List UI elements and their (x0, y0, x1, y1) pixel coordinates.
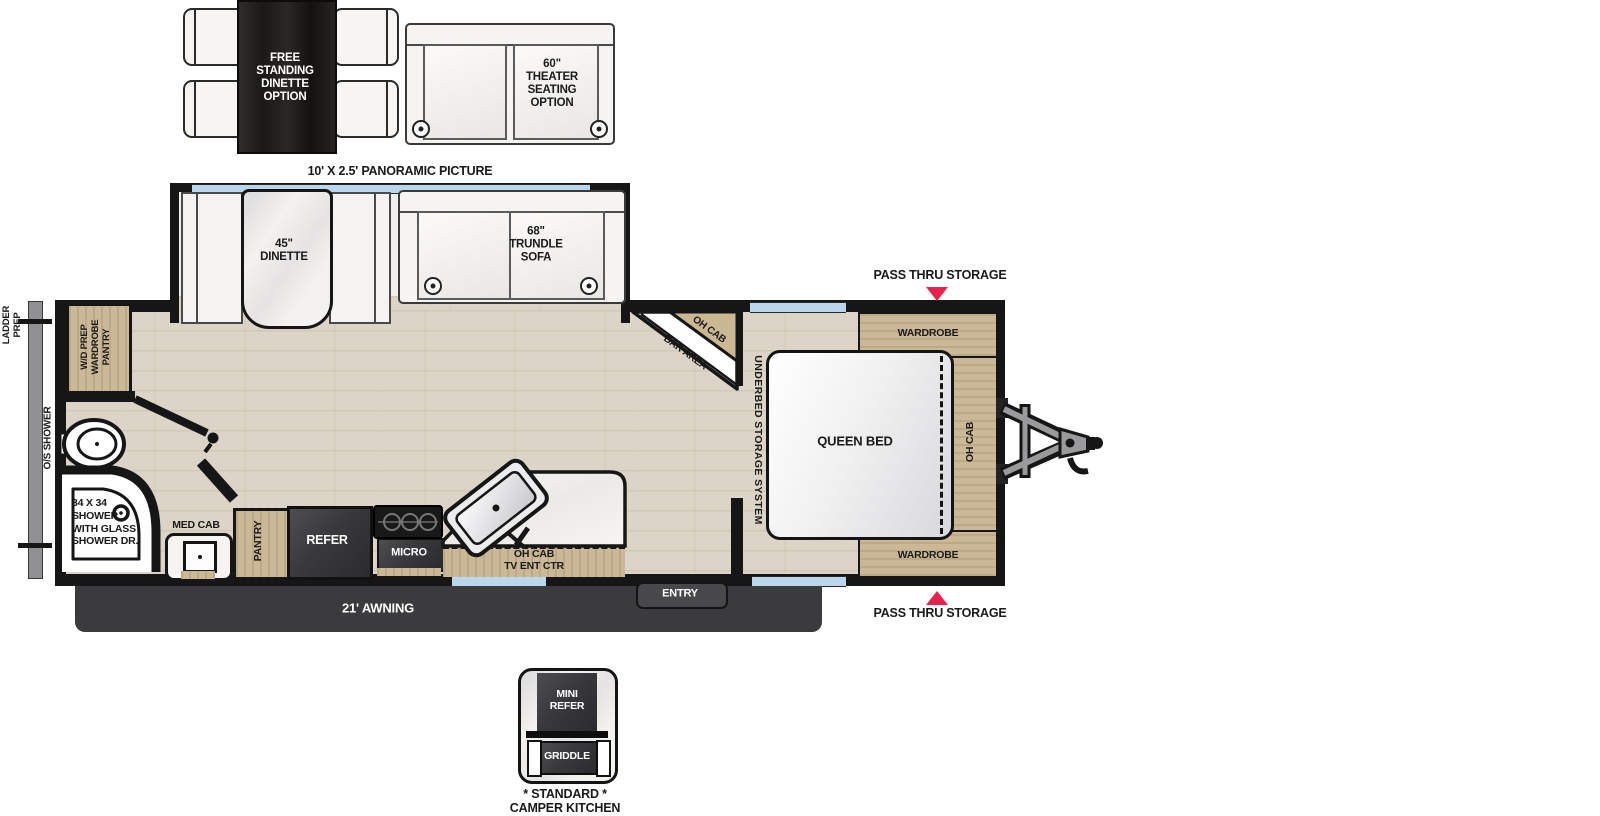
hitch (996, 398, 1103, 484)
dinette-seatback (374, 192, 391, 324)
sofa-back (400, 192, 624, 213)
underbed-storage-label: UNDERBED STORAGE SYSTEM (751, 355, 763, 524)
free-standing-dinette-label: FREE STANDING DINETTE OPTION (256, 52, 314, 104)
dinette-bench (196, 192, 243, 324)
pantry-label: PANTRY (253, 521, 265, 562)
chair-back (386, 82, 397, 136)
bed-fold-line (940, 356, 943, 534)
queen-bed-label: QUEEN BED (817, 435, 893, 450)
bedroom-wall-upper (731, 312, 743, 386)
shower-label: 34 X 34 SHOWER WITH GLASS SHOWER DR. (72, 497, 148, 548)
dinette-label: 45" DINETTE (260, 238, 308, 264)
sofa-back (407, 25, 613, 46)
wall-left (55, 300, 66, 586)
arrow-down-icon (926, 287, 948, 301)
awning-label: 21' AWNING (342, 602, 414, 617)
bath-vanity (165, 533, 233, 581)
bedroom-wall-lower (731, 498, 743, 576)
micro-base (377, 568, 441, 576)
os-shower-label: O/S SHOWER (42, 406, 53, 469)
bathroom-wall (55, 391, 135, 402)
griddle-label: GRIDDLE (544, 751, 590, 763)
cupholder-icon (590, 120, 608, 138)
trundle-sofa-label: 68" TRUNDLE SOFA (509, 225, 563, 264)
cupholder-icon (412, 120, 430, 138)
med-cab-label: MED CAB (172, 520, 220, 532)
cupholder-icon (424, 277, 442, 295)
camper-kitchen-rail (526, 731, 608, 738)
panoramic-picture-label: 10' X 2.5' PANORAMIC PICTURE (308, 164, 493, 178)
refer-label: REFER (306, 533, 347, 547)
dinette-chair (333, 80, 399, 138)
sofa-seat (423, 44, 507, 140)
wd-prep-label: W/D PREP WARDROBE PANTRY (80, 320, 112, 375)
mini-refer-label: MINI REFER (550, 689, 585, 713)
chair-back (185, 10, 196, 64)
chair-back (185, 82, 196, 136)
camper-kitchen-caption-2: CAMPER KITCHEN (510, 801, 620, 815)
ladder-prep-rail (28, 301, 43, 579)
tv-ent-ctr-label: OH CAB TV ENT CTR (504, 549, 564, 573)
rv-floorplan: FREE STANDING DINETTE OPTION 60" THEATER… (0, 0, 1600, 816)
pass-thru-top-label: PASS THRU STORAGE (874, 268, 1007, 282)
ladder-prep-label: LADDER PREP (2, 306, 24, 344)
bedroom-oh-cab-label: OH CAB (965, 422, 977, 462)
rail-bracket (18, 543, 52, 548)
micro-label: MICRO (391, 547, 427, 560)
cupholder-icon (580, 277, 598, 295)
dinette-chair (333, 8, 399, 66)
wardrobe-bottom-label: WARDROBE (898, 550, 959, 562)
bedroom-window-top (750, 302, 846, 313)
theater-seating-option (405, 23, 615, 145)
entry-label: ENTRY (662, 588, 698, 601)
bath-sink (183, 541, 217, 573)
theater-seating-label: 60" THEATER SEATING OPTION (526, 58, 578, 110)
chair-back (386, 10, 397, 64)
wardrobe-top-label: WARDROBE (898, 328, 959, 340)
drain-icon (198, 555, 202, 559)
vanity-base (181, 571, 215, 579)
arrow-up-icon (926, 591, 948, 605)
camper-kitchen-leg (596, 740, 611, 777)
camper-kitchen-caption-1: * STANDARD * (523, 787, 606, 801)
dinette-bench (329, 192, 376, 324)
pass-thru-bottom-label: PASS THRU STORAGE (874, 606, 1007, 620)
